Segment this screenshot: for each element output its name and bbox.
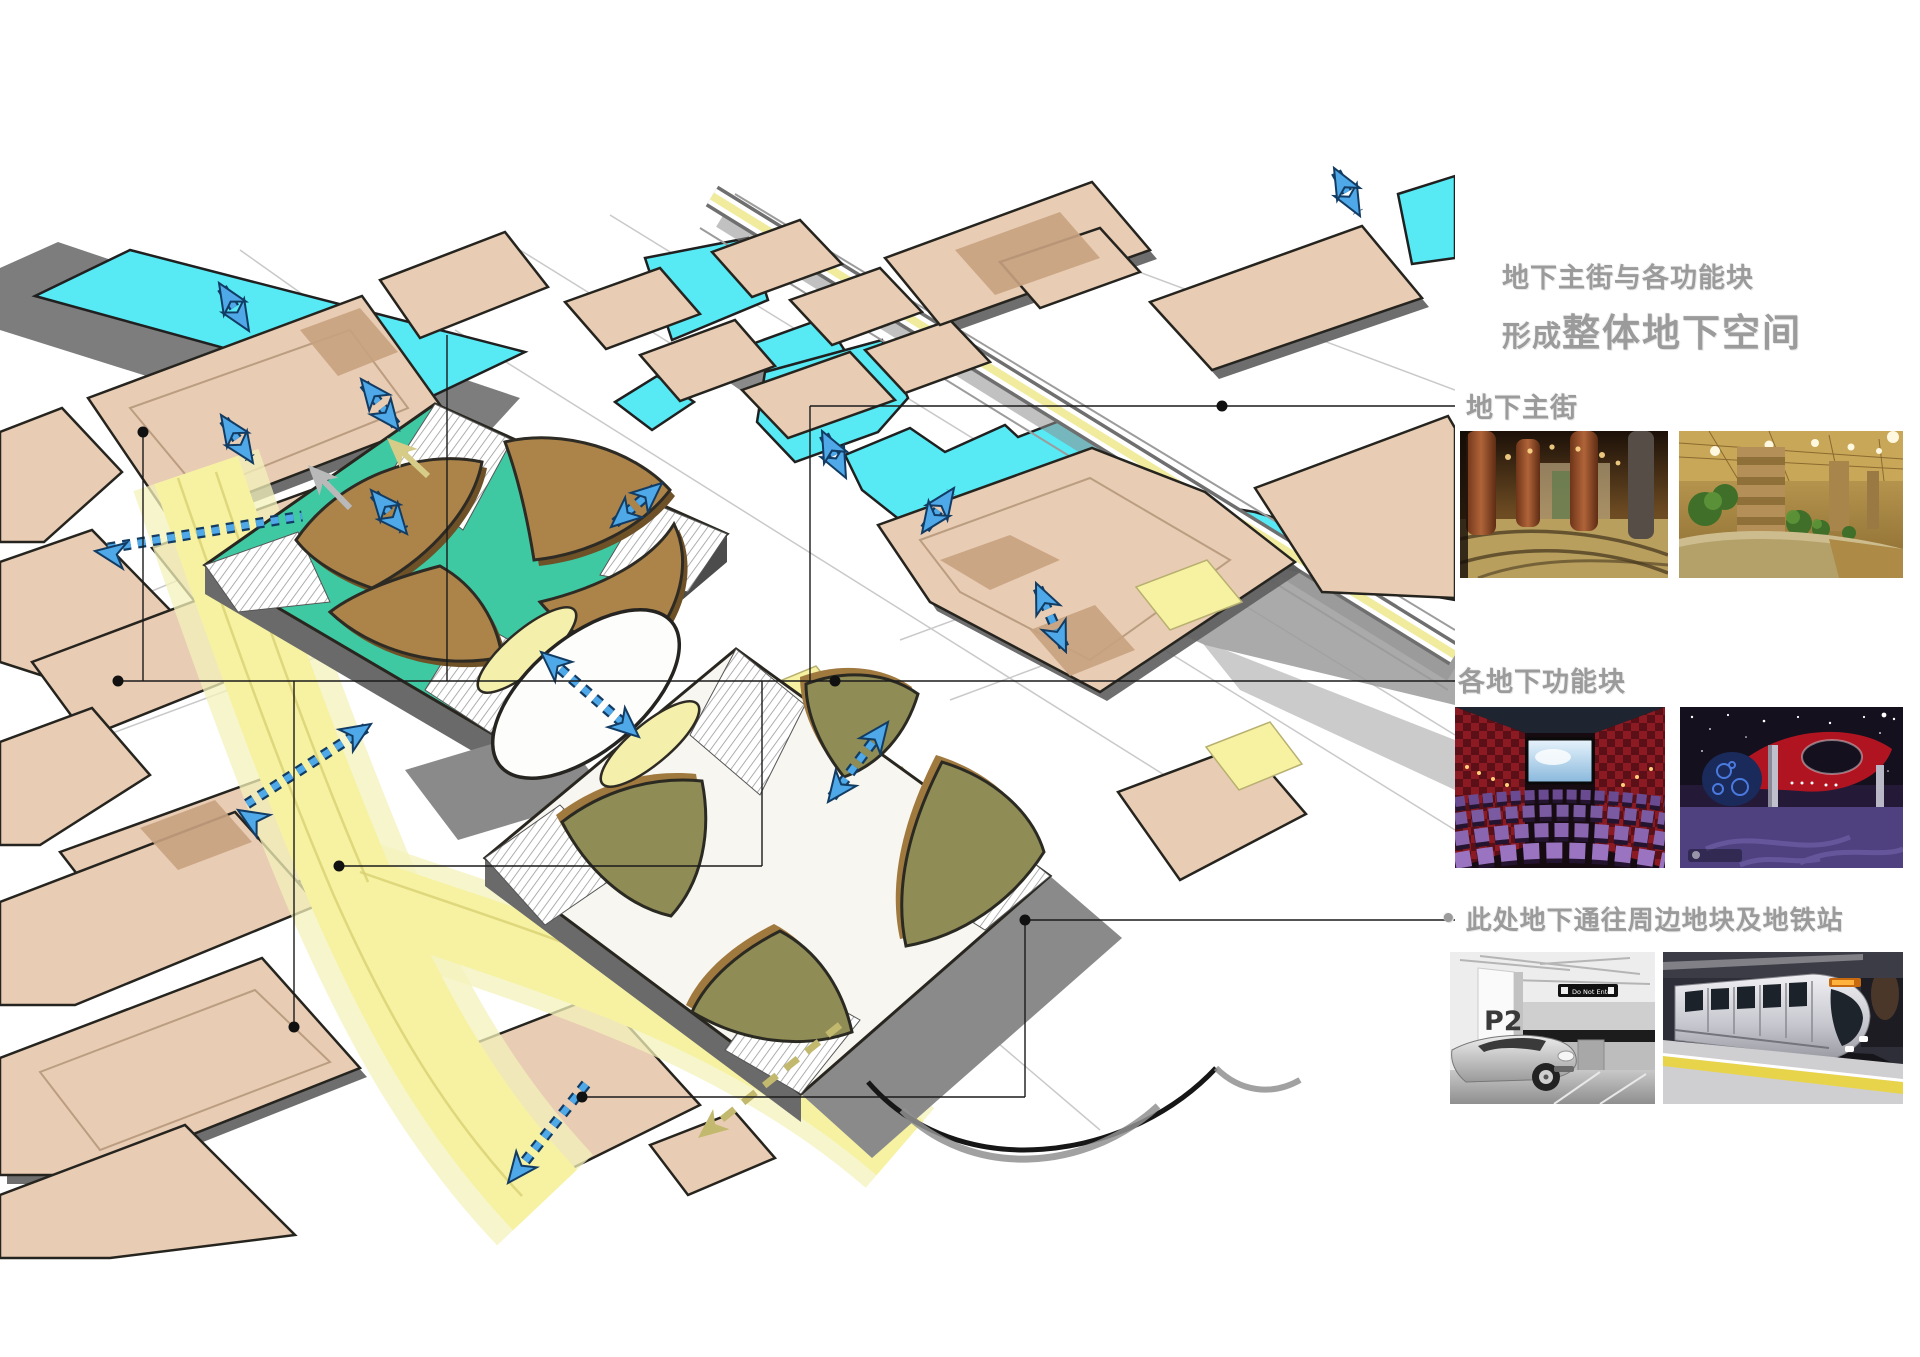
photo-cinema-auditorium: [1455, 707, 1665, 868]
title-line2-emphasis: 整体地下空间: [1562, 302, 1802, 357]
panel-title-line1: 地下主街与各功能块: [1502, 256, 1754, 295]
do-not-enter-sign: Do Not Enter: [1572, 988, 1614, 996]
section-label-connections-text: 此处地下通往周边地块及地铁站: [1466, 900, 1844, 937]
photo-parking-garage: Do Not Enter P2: [1450, 952, 1655, 1104]
title-line2-prefix: 形成: [1502, 313, 1562, 355]
bullet-icon: •: [1440, 904, 1458, 934]
section-label-function-blocks: 各地下功能块: [1458, 660, 1626, 699]
panel-title-line2: 形成整体地下空间: [1502, 302, 1802, 357]
section-label-connections: • 此处地下通往周边地块及地铁站: [1440, 900, 1844, 937]
photo-underground-street-corridor: [1679, 431, 1903, 578]
photo-metro-train: [1663, 952, 1903, 1104]
p2-pillar-sign: P2: [1484, 1006, 1523, 1037]
section-label-underground-street: 地下主街: [1466, 386, 1578, 425]
master-plan-diagram: [0, 0, 1455, 1357]
photo-entertainment-hall: [1680, 707, 1903, 868]
photo-underground-street-hall: [1460, 431, 1668, 578]
